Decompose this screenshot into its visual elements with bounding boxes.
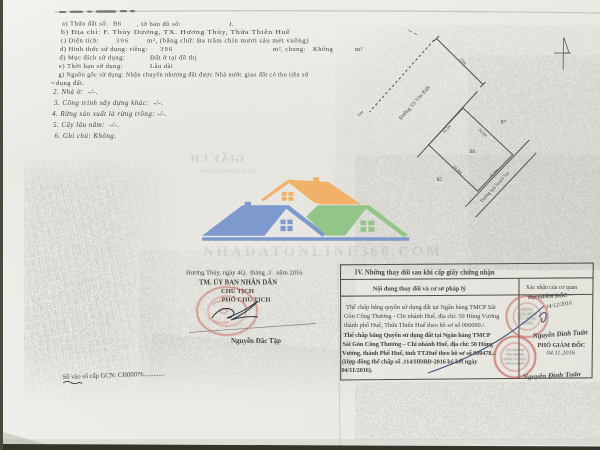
svg-text:Nội dung thay đổi và cơ sở phá: Nội dung thay đổi và cơ sở pháp lý bbox=[373, 285, 467, 292]
svg-text:NHADATONLINE360.COM: NHADATONLINE360.COM bbox=[203, 244, 443, 260]
svg-text:04/11/2016).: 04/11/2016). bbox=[342, 367, 373, 374]
svg-text:∼dụng đất.: ∼dụng đất. bbox=[50, 80, 85, 87]
svg-text:Gòn Công Thương - Chi nhánh Hu: Gòn Công Thương - Chi nhánh Huế, địa chỉ… bbox=[344, 313, 500, 320]
svg-text:04.11.2016: 04.11.2016 bbox=[547, 349, 576, 356]
svg-text:a) Thửa đất số:: a) Thửa đất số: bbox=[62, 21, 108, 28]
svg-text:B6: B6 bbox=[470, 150, 476, 155]
svg-text:ỦY BAN NHÂN DÂN: ỦY BAN NHÂN DÂN bbox=[199, 167, 256, 175]
svg-text:m², (bằng chữ: Ba trăm chín mư: m², (bằng chữ: Ba trăm chín mươi sáu mét… bbox=[147, 38, 309, 45]
svg-text:Thế chấp bằng quyền sử dụng đấ: Thế chấp bằng quyền sử dụng đất tại Ngân… bbox=[346, 304, 496, 311]
svg-text:m², chung:: m², chung: bbox=[273, 46, 306, 53]
svg-text:Xác nhận của cơ quan: Xác nhận của cơ quan bbox=[526, 285, 577, 291]
svg-text:Vương, thành Phố Huế, tỉnh TT.: Vương, thành Phố Huế, tỉnh TT.Huế theo h… bbox=[342, 350, 497, 357]
svg-text:IV. Những thay đổi sau khi cấp: IV. Những thay đổi sau khi cấp giấy chứn… bbox=[355, 269, 495, 276]
svg-text:PHÒNG: PHÒNG bbox=[521, 307, 534, 312]
svg-text:B5: B5 bbox=[437, 178, 443, 183]
svg-text:Không: Không bbox=[313, 46, 333, 53]
svg-text:thành phố Huế, Thừa Thiên Huế: thành phố Huế, Thừa Thiên Huế theo hồ sơ… bbox=[344, 322, 486, 329]
svg-text:c) Diện tích:: c) Diện tích: bbox=[61, 38, 100, 45]
svg-text:, tờ bản đồ số:: , tờ bản đồ số: bbox=[137, 21, 181, 28]
svg-text:J.: J. bbox=[229, 21, 234, 28]
svg-text:3. Công trình xây dựng khác:: 3. Công trình xây dựng khác: -/-. bbox=[53, 99, 164, 107]
svg-text:Lâu dài: Lâu dài bbox=[150, 63, 173, 70]
svg-text:TM. ỦY BAN NHÂN DÂN: TM. ỦY BAN NHÂN DÂN bbox=[199, 279, 277, 287]
svg-text:2. Nhà ở: -/-.: 2. Nhà ở: -/-. bbox=[53, 88, 98, 96]
svg-text:VĂN PHÒNG: VĂN PHÒNG bbox=[505, 352, 525, 357]
svg-text:5. Cây lâu năm: -/-.: 5. Cây lâu năm: -/-. bbox=[53, 121, 119, 129]
svg-text:đ) Mục đích sử dụng:: đ) Mục đích sử dụng: bbox=[60, 55, 126, 62]
svg-text:Sài Gòn Công Thương – Chi nhán: Sài Gòn Công Thương – Chi nhánh Huế, địa… bbox=[343, 341, 495, 348]
svg-text:Nguyễn Đắc Tập: Nguyễn Đắc Tập bbox=[231, 337, 281, 345]
svg-text:4. Rừng sản xuất là rừng trồng: 4. Rừng sản xuất là rừng trồng: -/-. bbox=[52, 110, 167, 118]
svg-text:B6: B6 bbox=[113, 21, 122, 28]
svg-text:B7: B7 bbox=[501, 121, 507, 126]
svg-text:m²: m² bbox=[355, 46, 363, 53]
svg-text:THỪA THIÊN: THỪA THIÊN bbox=[505, 361, 526, 366]
svg-text:d) Hình thức sử dụng: riêng:: d) Hình thức sử dụng: riêng: bbox=[60, 46, 148, 53]
svg-text:396: 396 bbox=[116, 38, 130, 45]
svg-text:PHÓ GIÁM ĐỐC: PHÓ GIÁM ĐỐC bbox=[538, 341, 586, 349]
svg-text:6. Ghi chú: Không.: 6. Ghi chú: Không. bbox=[55, 132, 117, 140]
svg-text:e) Thời hạn sử dụng:: e) Thời hạn sử dụng: bbox=[59, 63, 123, 70]
svg-text:Hương Thủy, ngày 4Q. tháng .3: Hương Thủy, ngày 4Q. tháng .3. năm 2016 bbox=[186, 270, 303, 277]
svg-text:Thế chấp bằng Quyền sử dụng đấ: Thế chấp bằng Quyền sử dụng đất tại Ngân… bbox=[344, 332, 491, 339]
svg-text:g) Nguồn gốc sử dụng: Nhận ch: g) Nguồn gốc sử dụng: Nhận chuyển nhượng… bbox=[59, 72, 309, 79]
svg-text:PHÓ CHỦ TỊCH: PHÓ CHỦ TỊCH bbox=[222, 296, 272, 304]
svg-text:Đất ở tại đô thị: Đất ở tại đô thị bbox=[150, 55, 197, 62]
svg-text:396: 396 bbox=[160, 46, 174, 53]
svg-text:GIẤY CH: GIẤY CH bbox=[189, 152, 244, 165]
svg-text:ĐĂNG KÝ ĐẤT: ĐĂNG KÝ ĐẤT bbox=[503, 356, 527, 361]
svg-text:b) Địa chỉ: F. Thủy Dương, TX.: b) Địa chỉ: F. Thủy Dương, TX. Hương Thủ… bbox=[61, 29, 291, 36]
svg-text:CHI NHÁNH: CHI NHÁNH bbox=[506, 347, 525, 352]
